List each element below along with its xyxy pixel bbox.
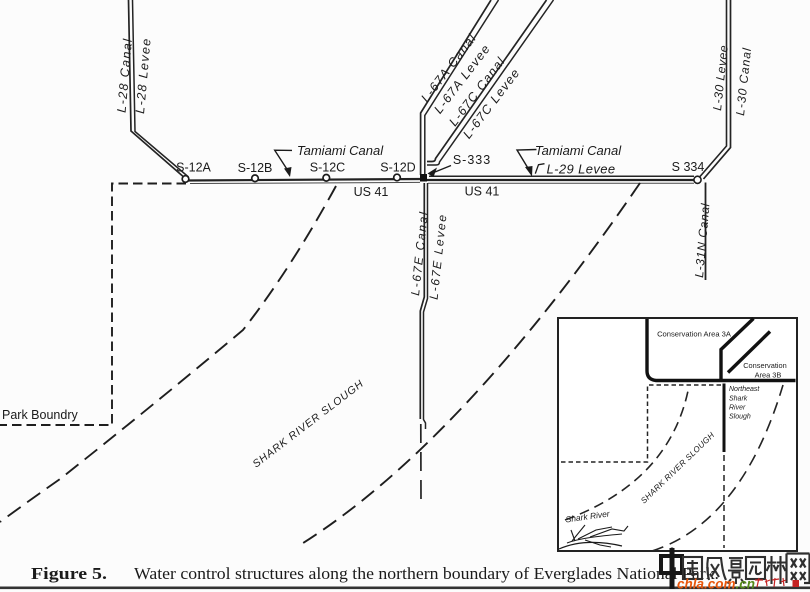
svg-text:Shark: Shark bbox=[729, 396, 748, 403]
svg-text:Park Boundry: Park Boundry bbox=[2, 408, 78, 422]
svg-text:S-12C: S-12C bbox=[310, 161, 345, 175]
svg-text:S-12D: S-12D bbox=[380, 161, 415, 175]
svg-text:S-12B: S-12B bbox=[238, 161, 273, 175]
svg-text:L-29 Levee: L-29 Levee bbox=[547, 162, 616, 177]
svg-text:Northeast: Northeast bbox=[729, 386, 760, 393]
svg-text:S-12A: S-12A bbox=[176, 161, 211, 175]
svg-text:Water control structures along: Water control structures along the north… bbox=[134, 564, 719, 583]
svg-text:Conservation: Conservation bbox=[743, 361, 787, 370]
svg-text:S 334: S 334 bbox=[672, 160, 705, 174]
svg-text:Area 3B: Area 3B bbox=[755, 371, 782, 380]
svg-text:chla.com.cn: chla.com.cn bbox=[677, 577, 755, 592]
svg-text:Tamiami Canal: Tamiami Canal bbox=[535, 143, 622, 158]
svg-text:Figure 5.: Figure 5. bbox=[31, 564, 107, 583]
svg-text:Tamiami Canal: Tamiami Canal bbox=[297, 143, 384, 158]
svg-text:Conservation Area 3A: Conservation Area 3A bbox=[657, 330, 732, 339]
svg-text:Slough: Slough bbox=[729, 414, 751, 421]
svg-text:US 41: US 41 bbox=[354, 185, 389, 199]
svg-text:S-333: S-333 bbox=[453, 153, 491, 167]
svg-text:River: River bbox=[729, 405, 746, 412]
svg-text:US 41: US 41 bbox=[465, 185, 500, 199]
